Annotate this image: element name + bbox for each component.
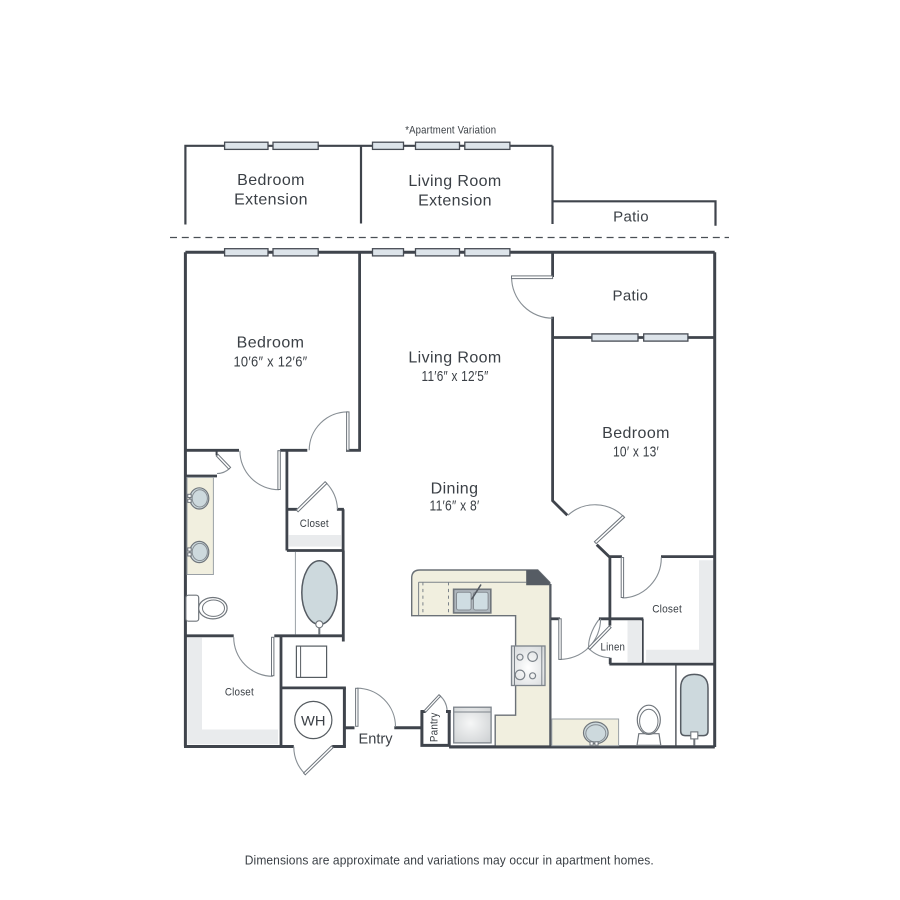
svg-text:Closet: Closet [652,603,682,615]
svg-text:10′6″ x 12′6″: 10′6″ x 12′6″ [234,354,308,371]
svg-text:10′ x 13′: 10′ x 13′ [613,444,659,461]
svg-text:Closet: Closet [225,686,254,698]
svg-text:11′6″ x 8′: 11′6″ x 8′ [430,498,480,515]
svg-text:*Apartment Variation: *Apartment Variation [405,124,496,136]
svg-text:Linen: Linen [601,641,626,653]
svg-text:Extension: Extension [418,192,492,209]
svg-text:Living Room: Living Room [408,349,501,366]
svg-text:Pantry: Pantry [429,712,441,742]
svg-text:Patio: Patio [613,287,649,304]
svg-text:Living Room: Living Room [408,173,501,190]
svg-text:Extension: Extension [234,192,308,209]
svg-text:Patio: Patio [613,208,649,225]
svg-text:Bedroom: Bedroom [602,425,670,442]
svg-text:Closet: Closet [300,518,329,530]
svg-text:Entry: Entry [359,731,393,748]
svg-text:Dining: Dining [431,481,479,498]
svg-text:Bedroom: Bedroom [237,172,305,189]
svg-text:11′6″ x 12′5″: 11′6″ x 12′5″ [422,368,489,385]
svg-text:Bedroom: Bedroom [237,335,305,352]
svg-text:WH: WH [301,714,326,729]
svg-text:Dimensions are approximate and: Dimensions are approximate and variation… [245,853,654,868]
